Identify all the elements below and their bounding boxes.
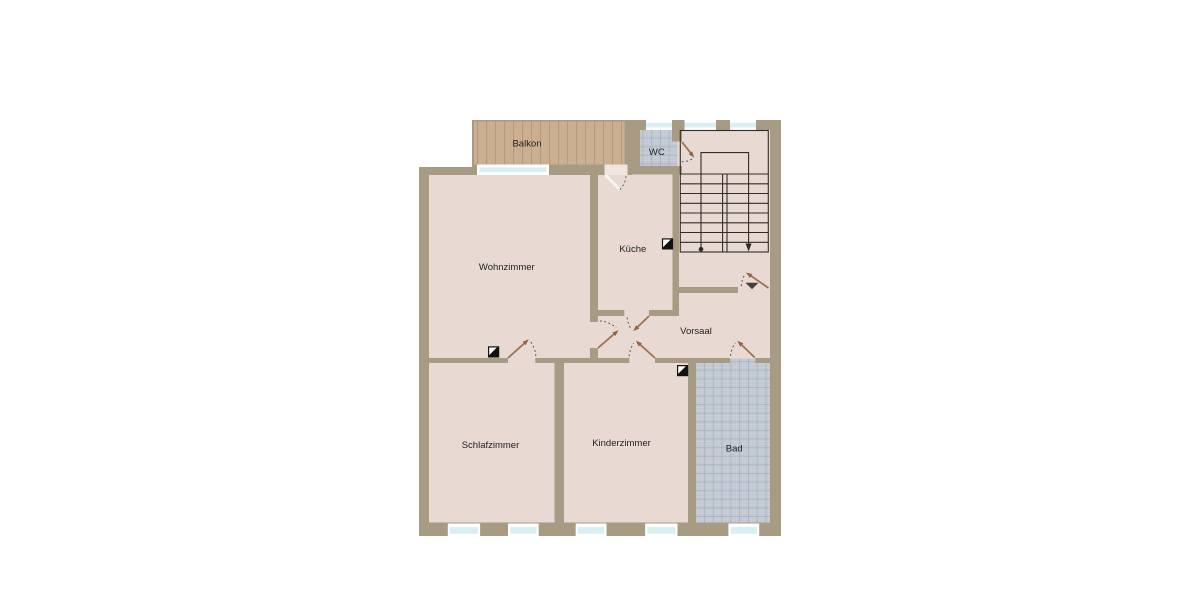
- svg-text:Küche: Küche: [619, 244, 646, 255]
- svg-text:Wohnzimmer: Wohnzimmer: [479, 262, 535, 273]
- svg-text:Schlafzimmer: Schlafzimmer: [462, 440, 520, 451]
- svg-text:WC: WC: [649, 147, 665, 158]
- svg-text:Vorsaal: Vorsaal: [680, 326, 712, 337]
- svg-text:Bad: Bad: [726, 444, 743, 455]
- svg-text:Balkon: Balkon: [512, 138, 541, 149]
- svg-text:Kinderzimmer: Kinderzimmer: [592, 438, 651, 449]
